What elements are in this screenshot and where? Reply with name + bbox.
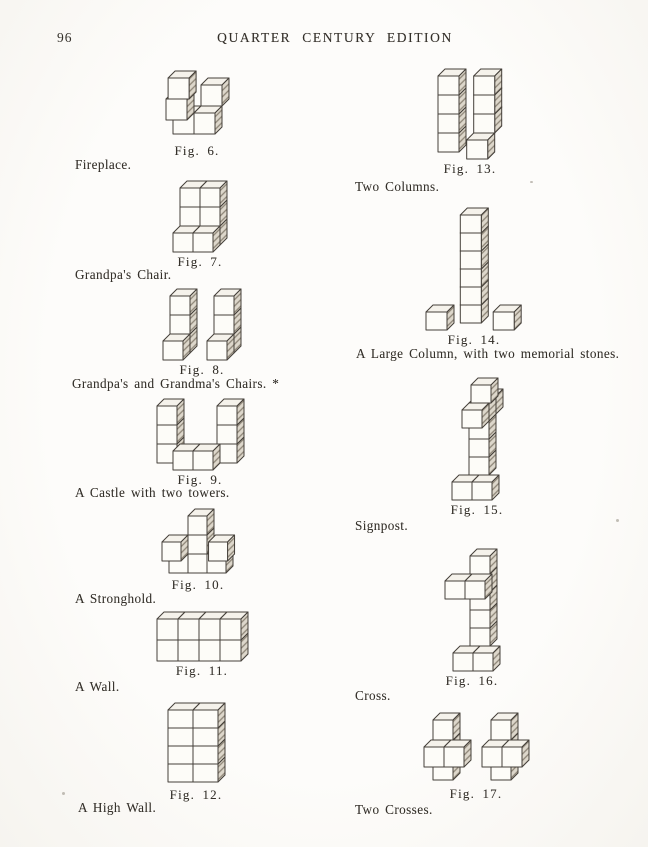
figure-caption-fig6: Fig. 6. [117, 143, 277, 159]
running-header: QUARTER CENTURY EDITION [165, 30, 505, 46]
figure-label-fig6: Fireplace. [75, 157, 131, 173]
block-figure-drawing [451, 377, 504, 501]
figure-fig17 [423, 712, 530, 781]
figure-fig7 [172, 180, 228, 253]
figure-fig13 [437, 68, 503, 160]
block-figure-drawing [423, 712, 530, 781]
block-figure-drawing [156, 398, 245, 471]
figure-label-fig14: A Large Column, with two memorial stones… [356, 346, 619, 362]
figure-label-fig10: A Stronghold. [75, 591, 156, 607]
block-figure-drawing [425, 207, 523, 331]
block-figure-drawing [156, 611, 249, 662]
figure-caption-fig16: Fig. 16. [392, 673, 552, 689]
figure-label-fig12: A High Wall. [78, 800, 156, 816]
figure-label-fig9: A Castle with two towers. [75, 485, 230, 501]
block-figure-drawing [444, 548, 501, 672]
block-figure-drawing [437, 68, 503, 160]
figure-label-fig16: Cross. [355, 688, 391, 704]
ink-speck [530, 181, 533, 183]
figure-fig6 [165, 70, 230, 135]
figure-label-fig17: Two Crosses. [355, 802, 433, 818]
figure-fig14 [425, 207, 523, 331]
book-page: 96 QUARTER CENTURY EDITION Fig. 6.Firepl… [0, 0, 648, 847]
block-figure-drawing [165, 70, 230, 135]
figure-label-fig8: Grandpa's and Grandma's Chairs. * [72, 376, 279, 392]
figure-fig8 [162, 288, 242, 361]
figure-caption-fig13: Fig. 13. [390, 161, 550, 177]
figure-fig11 [156, 611, 249, 662]
figure-label-fig15: Signpost. [355, 518, 408, 534]
figure-fig9 [156, 398, 245, 471]
figure-fig12 [167, 702, 226, 783]
figure-label-fig7: Grandpa's Chair. [75, 267, 171, 283]
ink-speck [616, 519, 619, 522]
block-figure-drawing [162, 288, 242, 361]
ink-speck [62, 792, 65, 795]
figure-caption-fig11: Fig. 11. [122, 663, 282, 679]
block-figure-drawing [161, 508, 236, 574]
figure-fig10 [161, 508, 236, 574]
figure-caption-fig17: Fig. 17. [396, 786, 556, 802]
block-figure-drawing [172, 180, 228, 253]
figure-fig15 [451, 377, 504, 501]
figure-label-fig11: A Wall. [75, 679, 120, 695]
page-number: 96 [57, 30, 73, 46]
block-figure-drawing [167, 702, 226, 783]
figure-fig16 [444, 548, 501, 672]
figure-caption-fig15: Fig. 15. [397, 502, 557, 518]
figure-label-fig13: Two Columns. [355, 179, 439, 195]
